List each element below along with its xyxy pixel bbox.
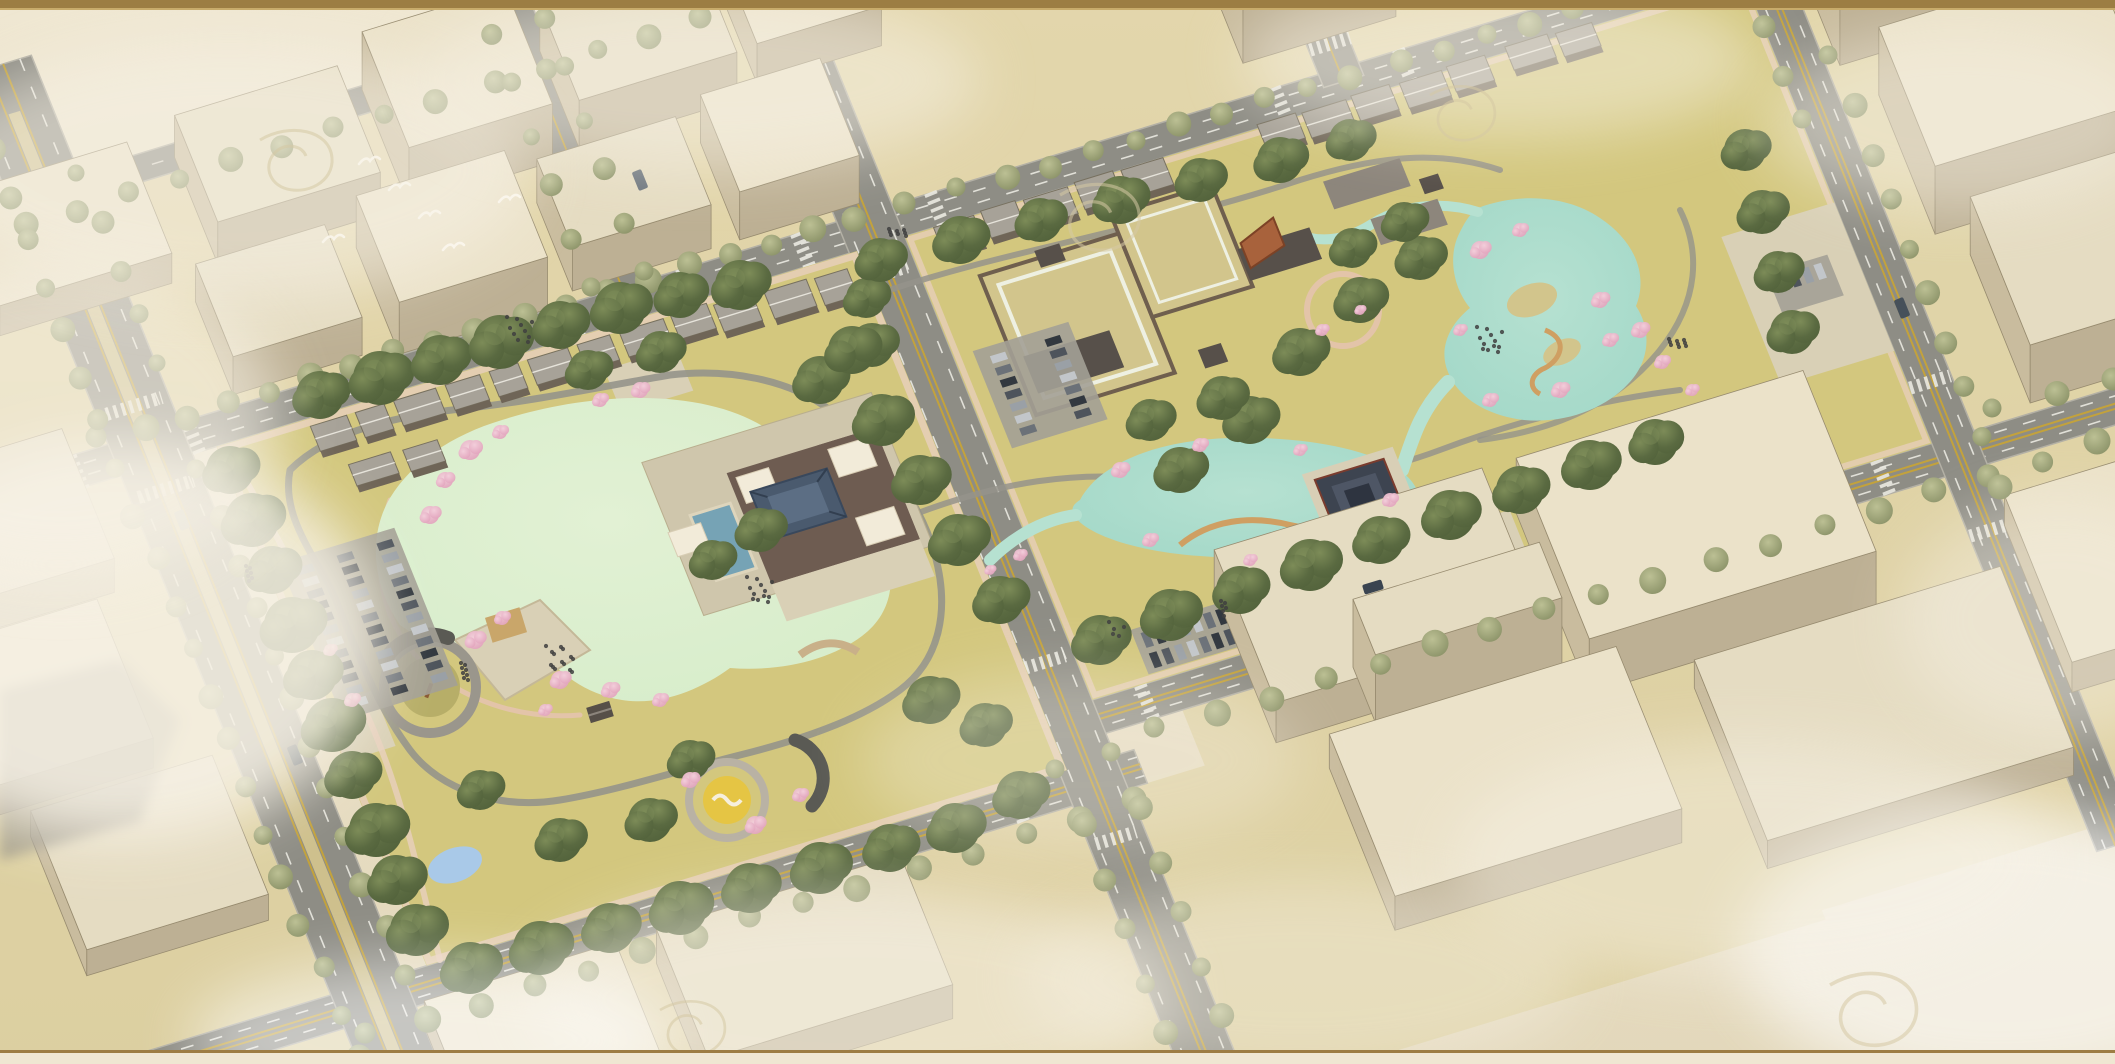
blossom-tree <box>792 793 800 801</box>
blossom-tree <box>1489 393 1499 403</box>
canopy-highlight <box>1346 284 1364 302</box>
blossom-tree <box>429 506 442 519</box>
blossom-tree <box>599 393 609 403</box>
street-tree <box>1370 654 1391 675</box>
person-dot <box>549 663 553 667</box>
canopy-highlight <box>1575 448 1595 468</box>
person-dot <box>550 650 554 654</box>
street-tree <box>995 165 1020 190</box>
person-dot <box>1478 336 1482 340</box>
canopy-highlight <box>867 245 885 263</box>
person-dot <box>756 598 760 602</box>
canopy-highlight <box>647 338 664 355</box>
person-dot <box>527 335 531 339</box>
blossom-tree <box>494 616 502 624</box>
person-dot <box>759 583 763 587</box>
person-dot <box>459 661 463 665</box>
canopy-highlight <box>425 343 445 363</box>
person-dot <box>1220 604 1224 608</box>
street-tree <box>561 229 582 250</box>
person-dot <box>505 315 509 319</box>
mist-cloud <box>1450 740 2050 980</box>
canopy-highlight <box>1226 574 1245 593</box>
aerial-scene <box>0 0 2115 1064</box>
blossom-tree <box>592 398 600 406</box>
blossom-tree <box>1192 443 1200 451</box>
person-dot <box>1111 632 1115 636</box>
canopy-highlight <box>364 360 386 382</box>
canopy-highlight <box>1337 126 1354 143</box>
mist-cloud <box>860 670 1300 850</box>
blossom-tree <box>1354 309 1360 315</box>
frame-bottom-margin <box>0 1053 2115 1064</box>
frame-bottom-trim <box>0 1050 2115 1053</box>
person-dot <box>515 317 519 321</box>
blossom-tree <box>1243 558 1250 565</box>
person-dot <box>1486 348 1490 352</box>
person-dot <box>569 655 573 659</box>
person-dot <box>896 232 900 236</box>
blossom-tree <box>990 565 997 572</box>
person-dot <box>751 597 755 601</box>
blossom-tree <box>1559 382 1570 393</box>
blossom-tree <box>1111 468 1121 478</box>
street-tree <box>1532 597 1555 620</box>
blossom-tree <box>501 611 511 621</box>
canopy-highlight <box>735 871 755 891</box>
blossom-tree <box>474 631 487 644</box>
blossom-tree <box>1459 324 1467 332</box>
blossom-tree <box>1519 223 1529 233</box>
blossom-tree <box>1691 384 1699 392</box>
street-tree <box>2032 451 2053 472</box>
blossom-tree <box>1299 444 1307 452</box>
street-tree <box>1814 514 1835 535</box>
street-tree <box>893 192 916 215</box>
person-dot <box>530 320 534 324</box>
blossom-tree <box>1591 298 1601 308</box>
canopy-highlight <box>747 515 765 533</box>
blossom-tree <box>420 512 431 523</box>
street-tree <box>1953 376 1974 397</box>
canopy-highlight <box>1641 426 1659 444</box>
person-dot <box>904 234 908 238</box>
canopy-highlight <box>1154 597 1175 618</box>
frame-top-trim <box>0 8 2115 10</box>
person-dot <box>512 332 516 336</box>
canopy-highlight <box>338 759 357 778</box>
canopy-highlight <box>876 832 895 851</box>
blossom-tree <box>436 478 446 488</box>
street-tree <box>2084 428 2111 455</box>
blossom-tree <box>631 388 641 398</box>
canopy-highlight <box>1166 454 1184 472</box>
street-tree <box>799 215 826 242</box>
street-tree <box>2045 381 2070 406</box>
blossom-tree <box>639 382 650 393</box>
canopy-highlight <box>1435 498 1455 518</box>
blossom-tree <box>1639 322 1650 333</box>
blossom-tree <box>492 430 500 438</box>
canopy-highlight <box>381 863 401 883</box>
blossom-tree <box>1685 388 1692 395</box>
canopy-highlight <box>1266 144 1284 162</box>
canopy-highlight <box>838 334 857 353</box>
person-dot <box>752 592 756 596</box>
street-tree <box>1639 567 1666 594</box>
person-dot <box>889 233 893 237</box>
street-tree <box>1093 869 1116 892</box>
blossom-tree <box>1602 338 1610 346</box>
blossom-tree <box>681 778 691 788</box>
canopy-highlight <box>942 522 963 543</box>
person-dot <box>1496 350 1500 354</box>
canopy-highlight <box>700 546 716 562</box>
blossom-tree <box>1482 398 1490 406</box>
street-tree <box>614 213 635 234</box>
canopy-highlight <box>946 224 965 243</box>
canopy-highlight <box>1294 547 1315 568</box>
blossom-tree <box>1293 448 1300 455</box>
canopy-highlight <box>468 776 484 792</box>
blossom-tree <box>544 704 552 712</box>
street-tree <box>286 914 309 937</box>
canopy-highlight <box>1187 165 1205 183</box>
person-dot <box>1677 345 1681 349</box>
canopy-highlight <box>604 290 625 311</box>
street-tree <box>1915 280 1940 305</box>
street-tree <box>761 235 782 256</box>
street-tree <box>947 178 966 197</box>
canopy-highlight <box>1749 197 1767 215</box>
canopy-highlight <box>547 825 565 843</box>
blossom-tree <box>652 698 660 706</box>
blossom-tree <box>1013 553 1020 560</box>
street-tree <box>1759 534 1782 557</box>
person-dot <box>463 663 467 667</box>
person-dot <box>1219 599 1223 603</box>
person-dot <box>508 326 512 330</box>
street-tree <box>1983 399 2002 418</box>
blossom-tree <box>1382 498 1390 506</box>
blossom-tree <box>1631 328 1641 338</box>
canopy-highlight <box>806 364 825 383</box>
blossom-tree <box>1512 228 1520 236</box>
blossom-tree <box>1479 241 1492 254</box>
person-dot <box>1684 344 1688 348</box>
blossom-tree <box>1389 493 1399 503</box>
blossom-tree <box>1360 305 1367 312</box>
person-dot <box>1221 609 1225 613</box>
blossom-tree <box>1142 538 1150 546</box>
street-tree <box>1704 547 1729 572</box>
street-tree <box>1988 475 2013 500</box>
person-dot <box>544 644 548 648</box>
canopy-highlight <box>1765 258 1782 275</box>
street-tree <box>1315 667 1338 690</box>
person-dot <box>516 338 520 342</box>
blossom-tree <box>1119 462 1130 473</box>
canopy-highlight <box>804 850 825 871</box>
person-dot <box>762 594 766 598</box>
street-tree <box>1866 497 1893 524</box>
blossom-tree <box>609 682 620 693</box>
person-dot <box>1493 339 1497 343</box>
person-dot <box>465 673 469 677</box>
street-tree <box>1753 15 1776 38</box>
street-tree <box>268 864 293 889</box>
blossom-tree <box>799 788 809 798</box>
street-tree <box>1934 332 1957 355</box>
street-tree <box>540 173 563 196</box>
canopy-highlight <box>1779 317 1797 335</box>
person-dot <box>464 668 468 672</box>
canopy-highlight <box>637 805 655 823</box>
street-tree <box>1149 852 1172 875</box>
street-tree <box>1083 140 1104 161</box>
person-dot <box>1492 344 1496 348</box>
person-dot <box>1224 606 1228 610</box>
street-tree <box>841 207 866 232</box>
canopy-highlight <box>484 324 506 346</box>
person-dot <box>745 575 749 579</box>
person-dot <box>1481 347 1485 351</box>
canopy-highlight <box>905 463 925 483</box>
canopy-highlight <box>1137 406 1154 423</box>
person-dot <box>1475 325 1479 329</box>
canopy-highlight <box>1366 524 1385 543</box>
person-dot <box>755 577 759 581</box>
blossom-tree <box>601 688 611 698</box>
person-dot <box>1497 345 1501 349</box>
blossom-tree <box>1453 328 1460 335</box>
person-dot <box>1669 343 1673 347</box>
blossom-tree <box>559 671 572 684</box>
person-dot <box>559 645 563 649</box>
canopy-highlight <box>1407 243 1425 261</box>
blossom-tree <box>754 816 767 829</box>
street-tree <box>1259 687 1284 712</box>
blossom-tree <box>1661 355 1671 365</box>
frame-top-band <box>0 0 2115 8</box>
canopy-highlight <box>400 912 421 933</box>
canopy-highlight <box>986 584 1005 603</box>
blossom-tree <box>1599 292 1610 303</box>
canopy-highlight <box>524 930 546 952</box>
person-dot <box>1112 627 1116 631</box>
person-dot <box>462 676 466 680</box>
canopy-highlight <box>1506 474 1525 493</box>
person-dot <box>1107 620 1111 624</box>
person-dot <box>560 660 564 664</box>
canopy-highlight <box>1340 234 1356 250</box>
blossom-tree <box>1609 333 1619 343</box>
blossom-tree <box>1315 328 1322 335</box>
canopy-highlight <box>866 402 887 423</box>
canopy-highlight <box>546 309 565 328</box>
blossom-tree <box>1551 388 1561 398</box>
canopy-highlight <box>725 268 745 288</box>
canopy-highlight <box>1209 383 1227 401</box>
canopy-highlight <box>360 812 382 834</box>
canopy-highlight <box>576 356 592 372</box>
person-dot <box>466 678 470 682</box>
street-tree <box>582 278 601 297</box>
canopy-highlight <box>1085 623 1105 643</box>
person-dot <box>770 580 774 584</box>
blossom-tree <box>499 425 509 435</box>
blossom-tree <box>538 708 545 715</box>
blossom-tree <box>1199 438 1209 448</box>
street-tree <box>1422 630 1449 657</box>
blossom-tree <box>1019 549 1027 557</box>
person-dot <box>460 666 464 670</box>
street-tree <box>1972 427 1991 446</box>
street-tree <box>1900 240 1919 259</box>
blossom-tree <box>550 677 561 688</box>
person-dot <box>523 329 527 333</box>
street-tree <box>1166 111 1191 136</box>
person-dot <box>1122 625 1126 629</box>
person-dot <box>1500 330 1504 334</box>
canopy-highlight <box>1027 205 1045 223</box>
person-dot <box>568 668 572 672</box>
blossom-tree <box>444 472 455 483</box>
person-dot <box>461 671 465 675</box>
canopy-highlight <box>306 379 325 398</box>
canopy-highlight <box>666 279 684 297</box>
person-dot <box>1489 333 1493 337</box>
canopy-highlight <box>1732 136 1749 153</box>
street-tree <box>1039 156 1062 179</box>
blossom-tree <box>1149 533 1159 543</box>
blossom-tree <box>1470 247 1481 258</box>
masterplan-rendering <box>0 0 2115 1064</box>
blossom-tree <box>984 569 990 575</box>
blossom-tree <box>659 693 669 703</box>
street-tree <box>1477 617 1502 642</box>
street-tree <box>254 826 273 845</box>
person-dot <box>767 595 771 599</box>
blossom-tree <box>745 822 756 833</box>
person-dot <box>1222 614 1226 618</box>
blossom-tree <box>689 772 700 783</box>
street-tree <box>1127 131 1146 150</box>
blossom-tree <box>1654 360 1662 368</box>
person-dot <box>763 589 767 593</box>
canopy-highlight <box>1392 208 1408 224</box>
canopy-highlight <box>678 746 694 762</box>
canopy-highlight <box>1286 336 1305 355</box>
blossom-tree <box>459 447 471 459</box>
street-tree <box>1210 103 1233 126</box>
person-dot <box>748 586 752 590</box>
blossom-tree <box>1249 554 1257 562</box>
person-dot <box>519 323 523 327</box>
street-tree <box>1588 584 1609 605</box>
person-dot <box>1482 342 1486 346</box>
street-tree <box>635 262 654 281</box>
person-dot <box>526 340 530 344</box>
canopy-highlight <box>854 284 870 300</box>
blossom-tree <box>1321 324 1329 332</box>
person-dot <box>1117 634 1121 638</box>
person-dot <box>1223 601 1227 605</box>
person-dot <box>766 600 770 604</box>
blossom-tree <box>469 440 483 454</box>
street-tree <box>1921 477 1946 502</box>
blossom-tree <box>465 637 476 648</box>
person-dot <box>1485 327 1489 331</box>
